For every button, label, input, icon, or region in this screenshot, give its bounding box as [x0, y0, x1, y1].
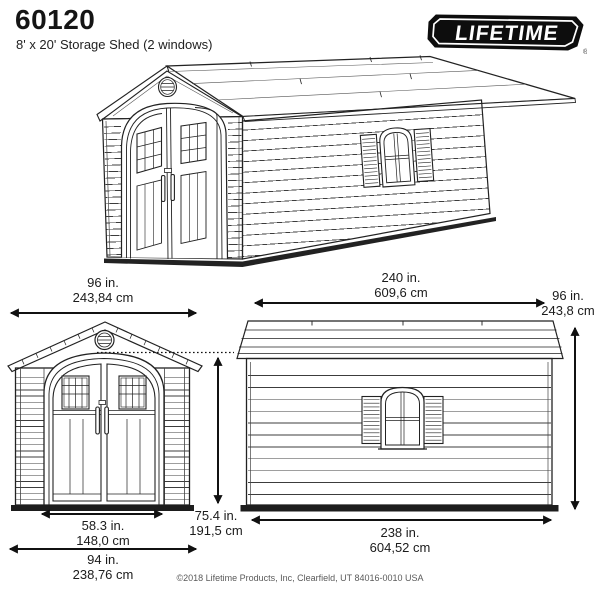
dim-side-height-inches: 96 in. — [541, 288, 594, 303]
perspective-view — [97, 55, 576, 267]
side-roof — [237, 321, 563, 359]
dim-front-base-cm: 238,76 cm — [73, 567, 134, 582]
dim-side-length-label: 240 in. 609,6 cm — [374, 270, 427, 300]
dim-door-height-label: 75.4 in. 191,5 cm — [189, 508, 242, 538]
dim-side-length-cm: 609,6 cm — [374, 285, 427, 300]
dim-door-height-cm: 191,5 cm — [189, 523, 242, 538]
dim-front-base-label: 94 in. 238,76 cm — [73, 552, 134, 582]
dim-front-width-inches: 96 in. — [73, 275, 134, 290]
dim-front-width-cm: 243,84 cm — [73, 290, 134, 305]
dim-side-base-cm: 604,52 cm — [370, 540, 431, 555]
dim-door-width-label: 58.3 in. 148,0 cm — [76, 518, 129, 548]
perspective-door-handles — [162, 176, 165, 202]
dim-side-base-label: 238 in. 604,52 cm — [370, 525, 431, 555]
side-view — [237, 321, 563, 512]
dim-side-base-inches: 238 in. — [370, 525, 431, 540]
front-base-skid — [11, 505, 194, 511]
dim-front-width-label: 96 in. 243,84 cm — [73, 275, 134, 305]
spec-sheet-page: 60120 8' x 20' Storage Shed (2 windows) … — [0, 0, 600, 600]
dim-side-length-inches: 240 in. — [374, 270, 427, 285]
perspective-doors — [122, 103, 228, 259]
perspective-side-window — [360, 126, 434, 189]
dim-door-width-cm: 148,0 cm — [76, 533, 129, 548]
dim-side-height-cm: 243,8 cm — [541, 303, 594, 318]
dim-door-height-inches: 75.4 in. — [189, 508, 242, 523]
front-door-handles — [96, 407, 100, 434]
dim-front-base-inches: 94 in. — [73, 552, 134, 567]
copyright-line: ©2018 Lifetime Products, Inc, Clearfield… — [176, 573, 423, 583]
side-window — [362, 388, 443, 450]
front-view — [8, 322, 202, 511]
side-base-skid — [241, 505, 559, 512]
dim-door-width-inches: 58.3 in. — [76, 518, 129, 533]
dim-side-height-label: 96 in. 243,8 cm — [541, 288, 594, 318]
